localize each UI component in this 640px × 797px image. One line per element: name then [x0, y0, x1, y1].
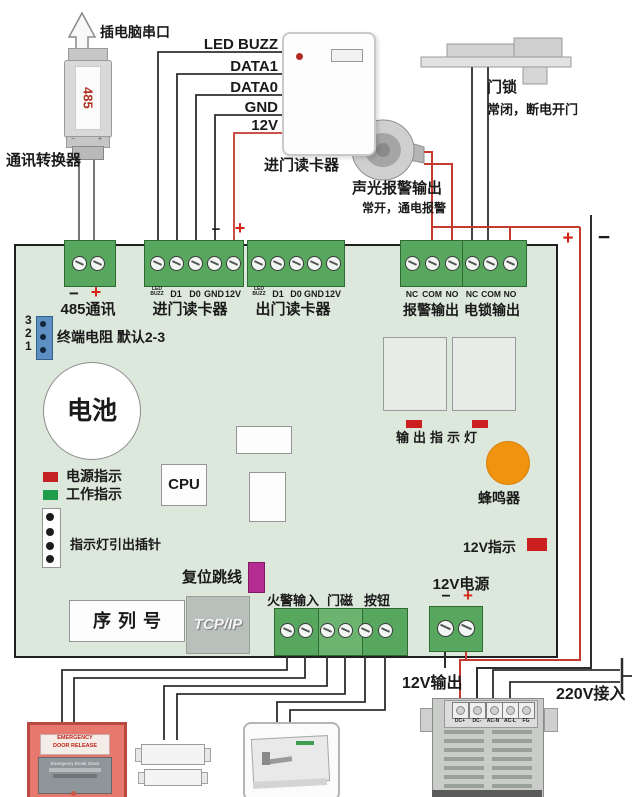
psu-terminal-label: AC-L — [504, 719, 516, 725]
door-lock-label: 门锁 — [487, 79, 517, 96]
terminal-pin — [320, 623, 335, 638]
terminal-pin — [465, 256, 480, 271]
terminal-pin — [307, 256, 322, 271]
exit-button-label: 按钮 — [364, 594, 390, 609]
terminal-pin — [270, 256, 285, 271]
terminal-pin — [72, 256, 87, 271]
emergency-line2: DOOR RELEASE — [41, 743, 109, 751]
pin-label: D1 — [272, 289, 284, 299]
pin-label: COM — [422, 290, 442, 300]
pin-label: GND — [204, 289, 224, 299]
wire-label-12v: 12V — [228, 117, 278, 134]
emergency-panel-text: Emergency Break Glass — [39, 761, 111, 766]
header-pin-dot — [46, 542, 54, 550]
battery-label: 电池 — [67, 397, 117, 426]
emergency-label-plate: EMERGENCY DOOR RELEASE — [40, 734, 110, 755]
alarm-output-label: 声光报警输出 — [352, 180, 442, 197]
serial-port-label: 插电脑串口 — [100, 24, 170, 40]
entry-reader-terminal-label: 进门读卡器 — [152, 301, 227, 318]
v12-output-label: 12V输出 — [402, 675, 462, 693]
comm-plus-mark: + — [91, 282, 102, 303]
terminal-pin — [483, 256, 498, 271]
buzzer-label: 蜂鸣器 — [478, 490, 520, 506]
reset-jumper-label: 复位跳线 — [182, 569, 242, 586]
pin-label: NC — [406, 290, 418, 300]
jumper-dot — [40, 321, 46, 327]
terminal-pin — [169, 256, 184, 271]
alarm-output-terminal-label: 报警输出 — [403, 302, 459, 318]
lock-output-terminal-label: 电锁输出 — [464, 302, 520, 318]
psu-terminal-label: AC-N — [487, 719, 500, 725]
cpu-label: CPU — [168, 476, 200, 493]
v12-minus-mark: − — [441, 588, 450, 606]
door-lock-device — [421, 38, 571, 84]
psu-screw-terminal — [469, 702, 486, 719]
run-led-icon — [43, 490, 58, 500]
terminal-pin — [458, 620, 475, 637]
terminal-pin — [251, 256, 266, 271]
exit-button-lever-knob — [262, 752, 270, 765]
entry-reader-label: 进门读卡器 — [264, 157, 339, 174]
component-box — [249, 472, 286, 522]
psu-terminal-label: FG — [523, 719, 530, 725]
terminal-pin — [437, 620, 454, 637]
emergency-glass-panel: Emergency Break Glass — [38, 757, 112, 794]
fire-input-label: 火警输入 — [267, 594, 319, 609]
output-led-2-icon — [472, 420, 488, 428]
pin-label: 12V — [225, 289, 241, 299]
reader-display-slot — [331, 49, 363, 62]
output-led-label: 输出指示灯 — [396, 431, 481, 446]
relay-2 — [452, 337, 516, 411]
pin-label: D1 — [170, 289, 182, 299]
comm-terminal-label: 485通讯 — [60, 301, 115, 318]
terminal-pin — [280, 623, 295, 638]
rail-minus-mark: − — [598, 226, 610, 250]
terminal-pin — [289, 256, 304, 271]
psu-terminal-label: DC+ — [455, 719, 465, 725]
terminal-pin — [326, 256, 341, 271]
terminal-pin — [378, 623, 393, 638]
power-led-label: 电源指示 — [66, 468, 122, 484]
terminal-pin — [445, 256, 460, 271]
output-led-1-icon — [406, 420, 422, 428]
jumper-dot — [40, 334, 46, 340]
jumper-dot — [40, 347, 46, 353]
access-controller-wiring-diagram: 插电脑串口 485 − + 通讯转换器 LED BUZZ DATA1 DATA0… — [0, 0, 640, 797]
panel-detail-bar — [49, 768, 101, 772]
pin-label: NC — [466, 290, 478, 300]
door-magnet-label: 门磁 — [327, 594, 353, 609]
alarm-output-note: 常开，通电报警 — [362, 202, 446, 216]
terminal-pin — [358, 623, 373, 638]
psu-base-strip — [432, 790, 542, 797]
wire-converter-485 — [79, 150, 94, 252]
header-pin-dot — [46, 513, 54, 521]
v12-led-icon — [527, 538, 547, 551]
v220-input-label: 220V接入 — [556, 686, 625, 704]
psu-screw-terminal — [518, 702, 535, 719]
pin-label: D0 — [290, 289, 302, 299]
terminal-pin — [90, 256, 105, 271]
pin-label: NO — [504, 290, 517, 300]
psu-screw-terminal — [452, 702, 469, 719]
power-led-icon — [43, 472, 58, 482]
relay-1 — [383, 337, 447, 411]
pin-label: COM — [481, 290, 501, 300]
terminal-pin — [338, 623, 353, 638]
reader-led-icon — [296, 53, 303, 60]
terminal-pin — [207, 256, 222, 271]
buzzer-icon — [486, 441, 530, 485]
wire-label-data1: DATA1 — [200, 58, 278, 75]
exit-reader-terminal-label: 出门读卡器 — [255, 301, 330, 318]
tcpip-label: TCP/IP — [194, 616, 242, 633]
wire-label-led-buzz: LED BUZZ — [170, 36, 278, 53]
tcpip-module: TCP/IP — [186, 596, 250, 654]
converter-label: 通讯转换器 — [6, 152, 81, 169]
terminal-pin — [405, 256, 420, 271]
serial-number-label: 序列号 — [86, 611, 168, 632]
terminal-pin — [226, 256, 241, 271]
door-magnet-bar — [144, 769, 202, 786]
converter-minus-mark: − — [71, 136, 75, 144]
header-pin-dot — [46, 528, 54, 536]
wire-door-lock — [472, 67, 488, 252]
jumper-pin-1: 1 — [25, 340, 32, 354]
led-header-label: 指示灯引出插针 — [70, 538, 161, 553]
reset-jumper-block — [248, 562, 265, 593]
terminal-pin — [188, 256, 203, 271]
panel-detail-bar — [53, 774, 97, 778]
v12-plus-mark: + — [463, 586, 473, 606]
terminator-jumper-label: 终端电阻 默认2-3 — [57, 329, 165, 345]
terminal-pin — [298, 623, 313, 638]
pin-label: D0 — [189, 289, 201, 299]
run-led-label: 工作指示 — [66, 486, 122, 502]
door-lock-note: 常闭，断电开门 — [487, 103, 578, 118]
psu-vent-slots — [492, 730, 532, 792]
header-pin-dot — [46, 555, 54, 563]
v12-led-label: 12V指示 — [463, 539, 516, 555]
reader-plus-mark: + — [235, 218, 246, 239]
terminal-pin — [425, 256, 440, 271]
serial-number-box: 序列号 — [69, 600, 185, 642]
door-magnet-sensor-bar — [141, 744, 205, 765]
psu-screw-terminal — [486, 702, 503, 719]
emergency-screw-dot — [71, 791, 76, 796]
converter-485-chip-label: 485 — [81, 87, 96, 109]
wire-label-gnd: GND — [220, 99, 278, 116]
psu-mount-ear — [544, 708, 558, 732]
terminal-pin — [150, 256, 165, 271]
emergency-line1: EMERGENCY — [41, 735, 109, 743]
pin-label: GND — [304, 289, 324, 299]
reader-minus-mark: − — [212, 221, 221, 238]
pin-label: LED BUZZ — [148, 287, 166, 297]
psu-terminal-label: DC- — [473, 719, 482, 725]
battery-holder: 电池 — [43, 362, 141, 460]
component-box — [236, 426, 292, 454]
pin-label: NO — [446, 290, 459, 300]
psu-screw-terminal — [502, 702, 519, 719]
rail-plus-mark: + — [562, 228, 573, 250]
pin-label: 12V — [325, 289, 341, 299]
wire-label-data0: DATA0 — [200, 79, 278, 96]
pin-label: LED BUZZ — [250, 287, 268, 297]
converter-plus-mark: + — [98, 136, 102, 144]
exit-button-led-strip — [296, 741, 314, 745]
cpu-chip: CPU — [161, 464, 207, 506]
terminal-pin — [503, 256, 518, 271]
psu-vent-slots — [444, 730, 484, 792]
